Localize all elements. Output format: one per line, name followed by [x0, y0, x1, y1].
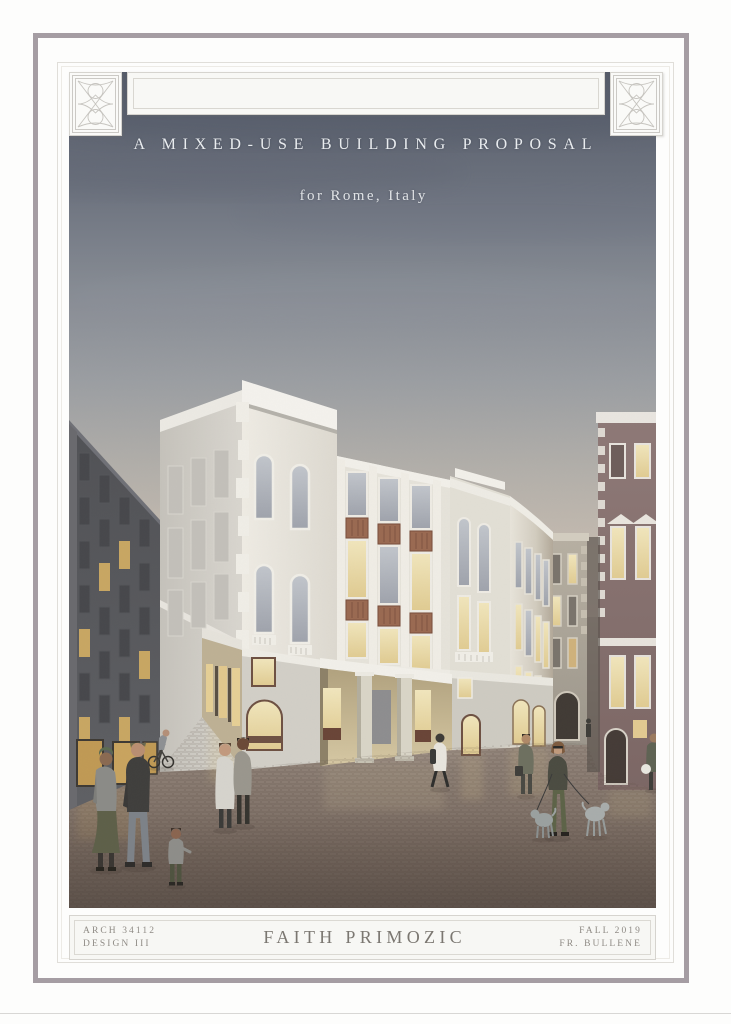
footer-term: FALL 2019 — [502, 925, 642, 938]
footer-author: FAITH PRIMOZIC — [223, 927, 502, 948]
footer-term-block: FALL 2019 FR. BULLENE — [502, 925, 650, 951]
presentation-board-page: A MIXED-USE BUILDING PROPOSAL for Rome, … — [0, 0, 731, 1024]
corner-ornament-lattice — [70, 73, 121, 135]
footer-instructor: FR. BULLENE — [502, 938, 642, 951]
page-bottom-rule — [0, 1013, 731, 1014]
corner-ornament-lattice — [611, 73, 662, 135]
poster-subtitle: for Rome, Italy — [69, 188, 656, 205]
footer-course-block: ARCH 34112 DESIGN III — [75, 925, 223, 951]
footer-band-inner-outline: ARCH 34112 DESIGN III FAITH PRIMOZIC FAL… — [74, 920, 651, 955]
title-band — [127, 72, 605, 115]
corner-ornament-top-right — [610, 72, 663, 136]
poster-title: A MIXED-USE BUILDING PROPOSAL — [69, 136, 656, 154]
footer-course: ARCH 34112 — [83, 925, 223, 938]
footer-studio: DESIGN III — [83, 938, 223, 951]
footer-band: ARCH 34112 DESIGN III FAITH PRIMOZIC FAL… — [69, 915, 656, 960]
corner-ornament-top-left — [69, 72, 122, 136]
title-band-inner-outline — [133, 78, 599, 109]
